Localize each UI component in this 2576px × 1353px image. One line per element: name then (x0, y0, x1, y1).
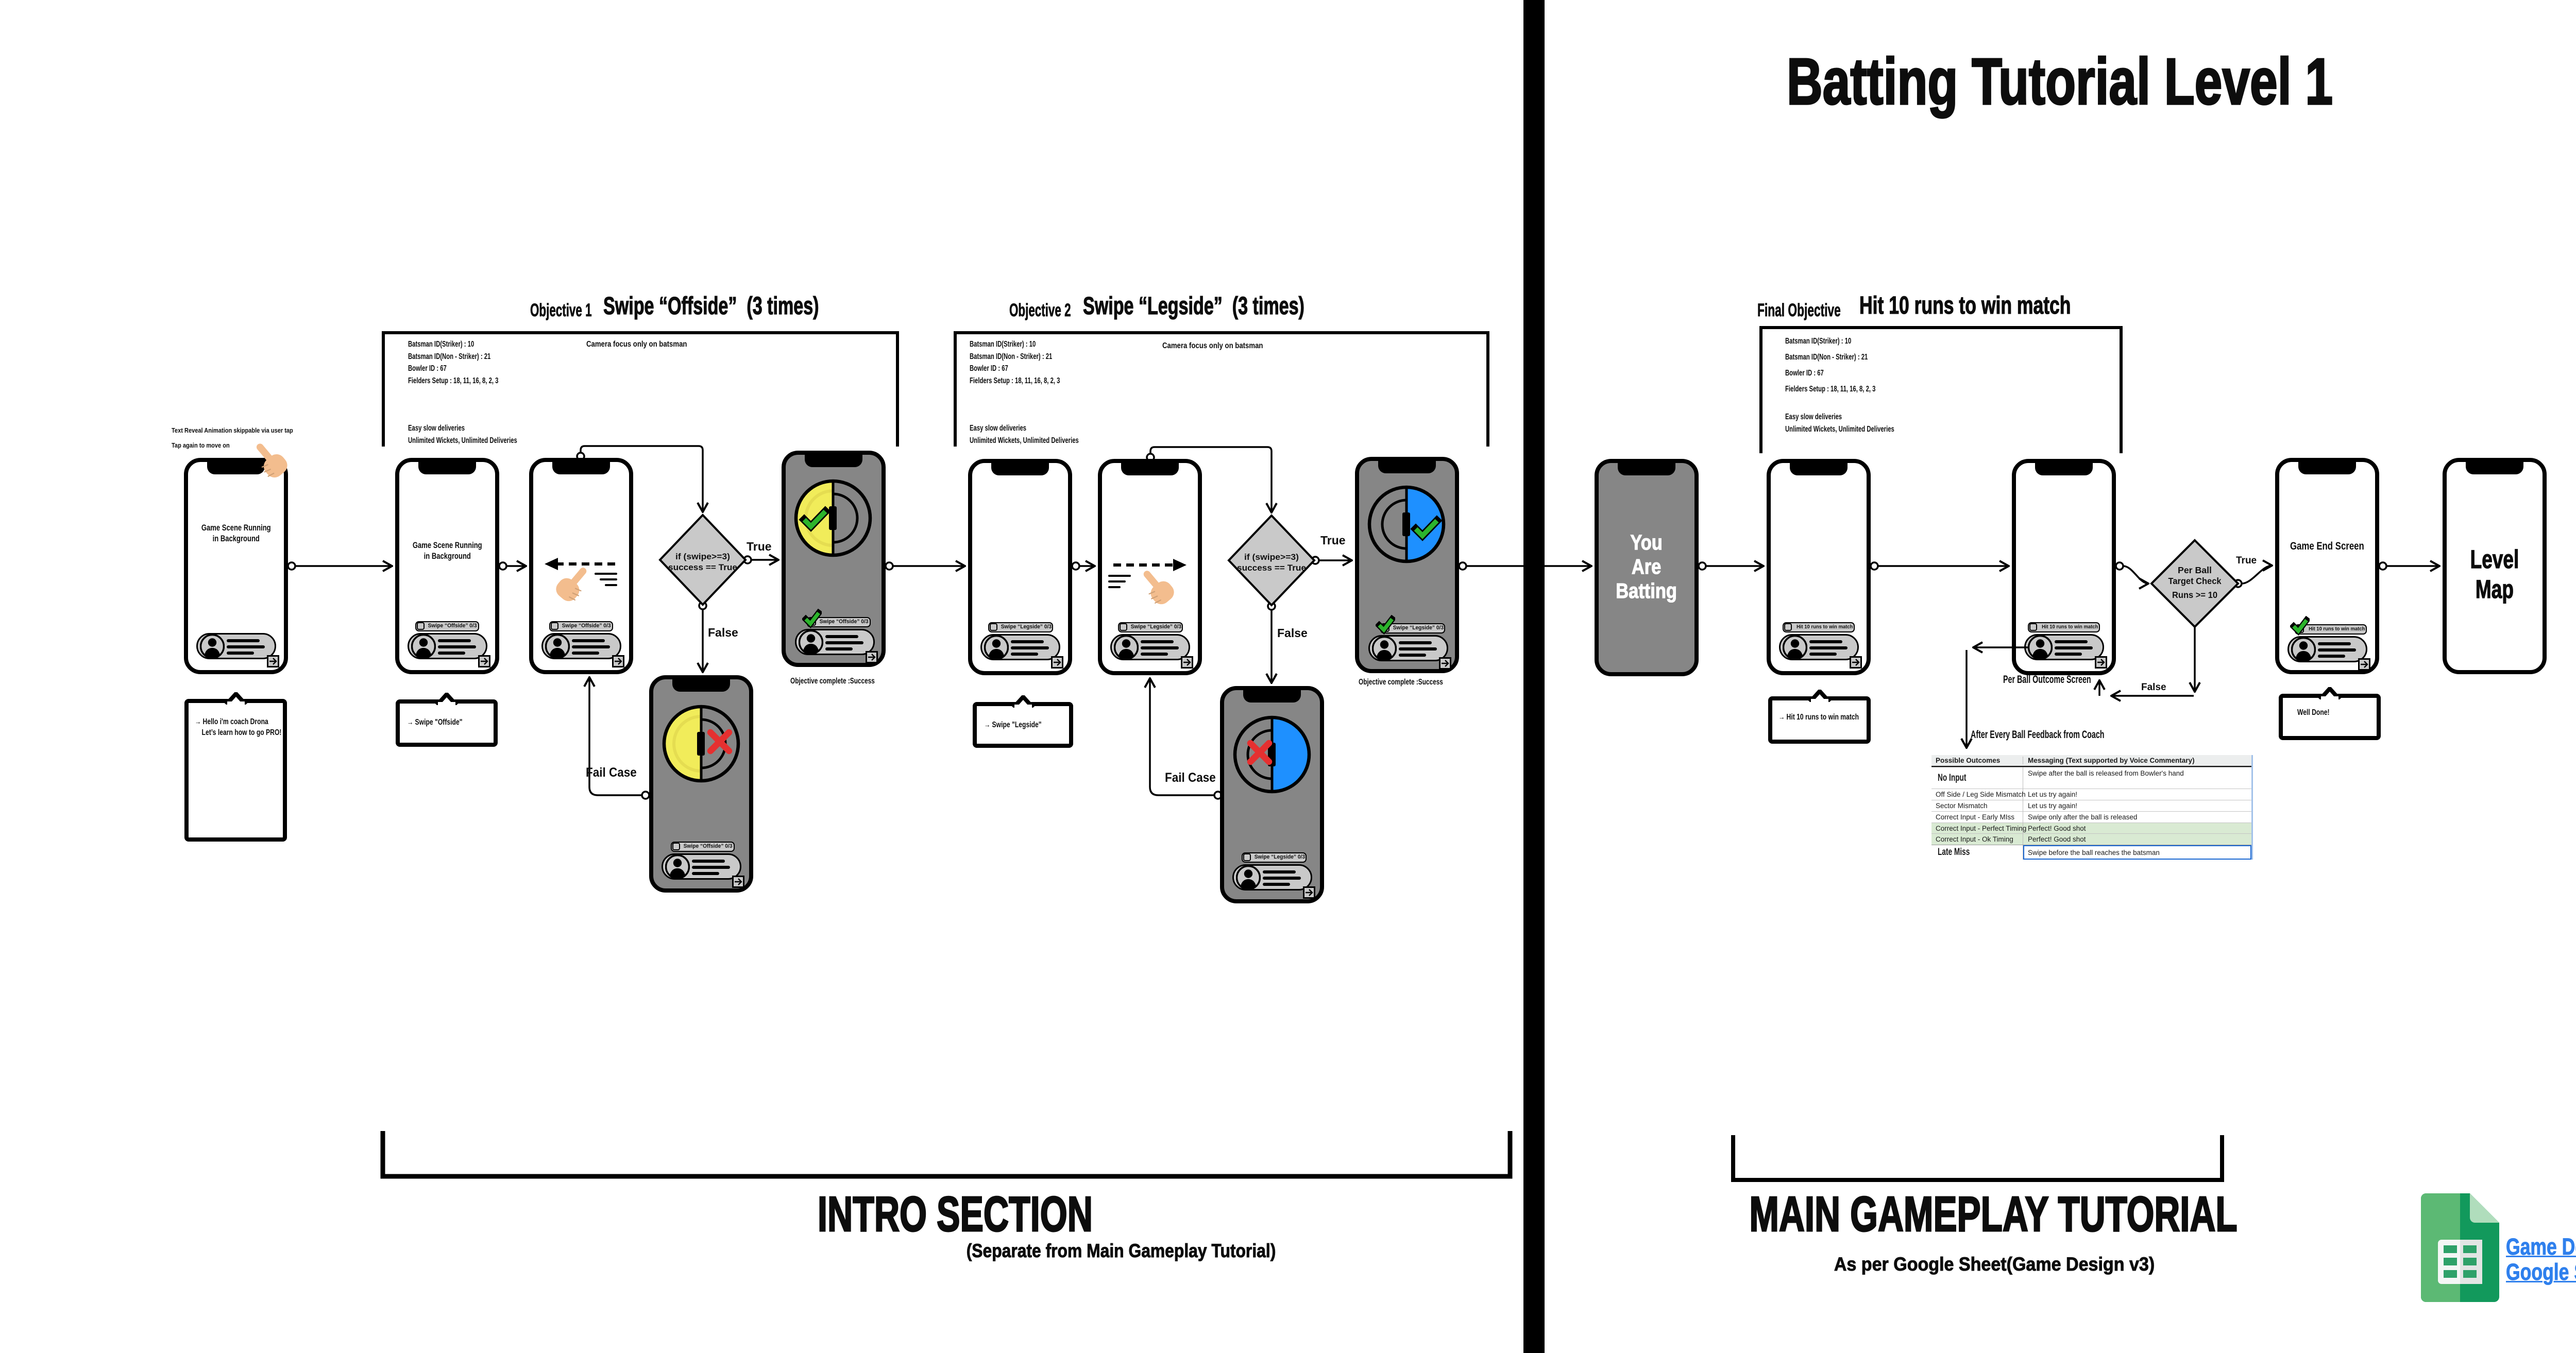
svg-text:Target Check: Target Check (2168, 576, 2222, 586)
svg-text:if (swipe>=3): if (swipe>=3) (1244, 552, 1299, 562)
svg-text:if (swipe>=3): if (swipe>=3) (675, 552, 730, 561)
svg-text:Runs >= 10: Runs >= 10 (2172, 590, 2217, 600)
svg-text:success == True: success == True (668, 562, 737, 572)
svg-text:Per Ball: Per Ball (2178, 565, 2212, 575)
svg-text:success == True: success == True (1237, 563, 1306, 573)
